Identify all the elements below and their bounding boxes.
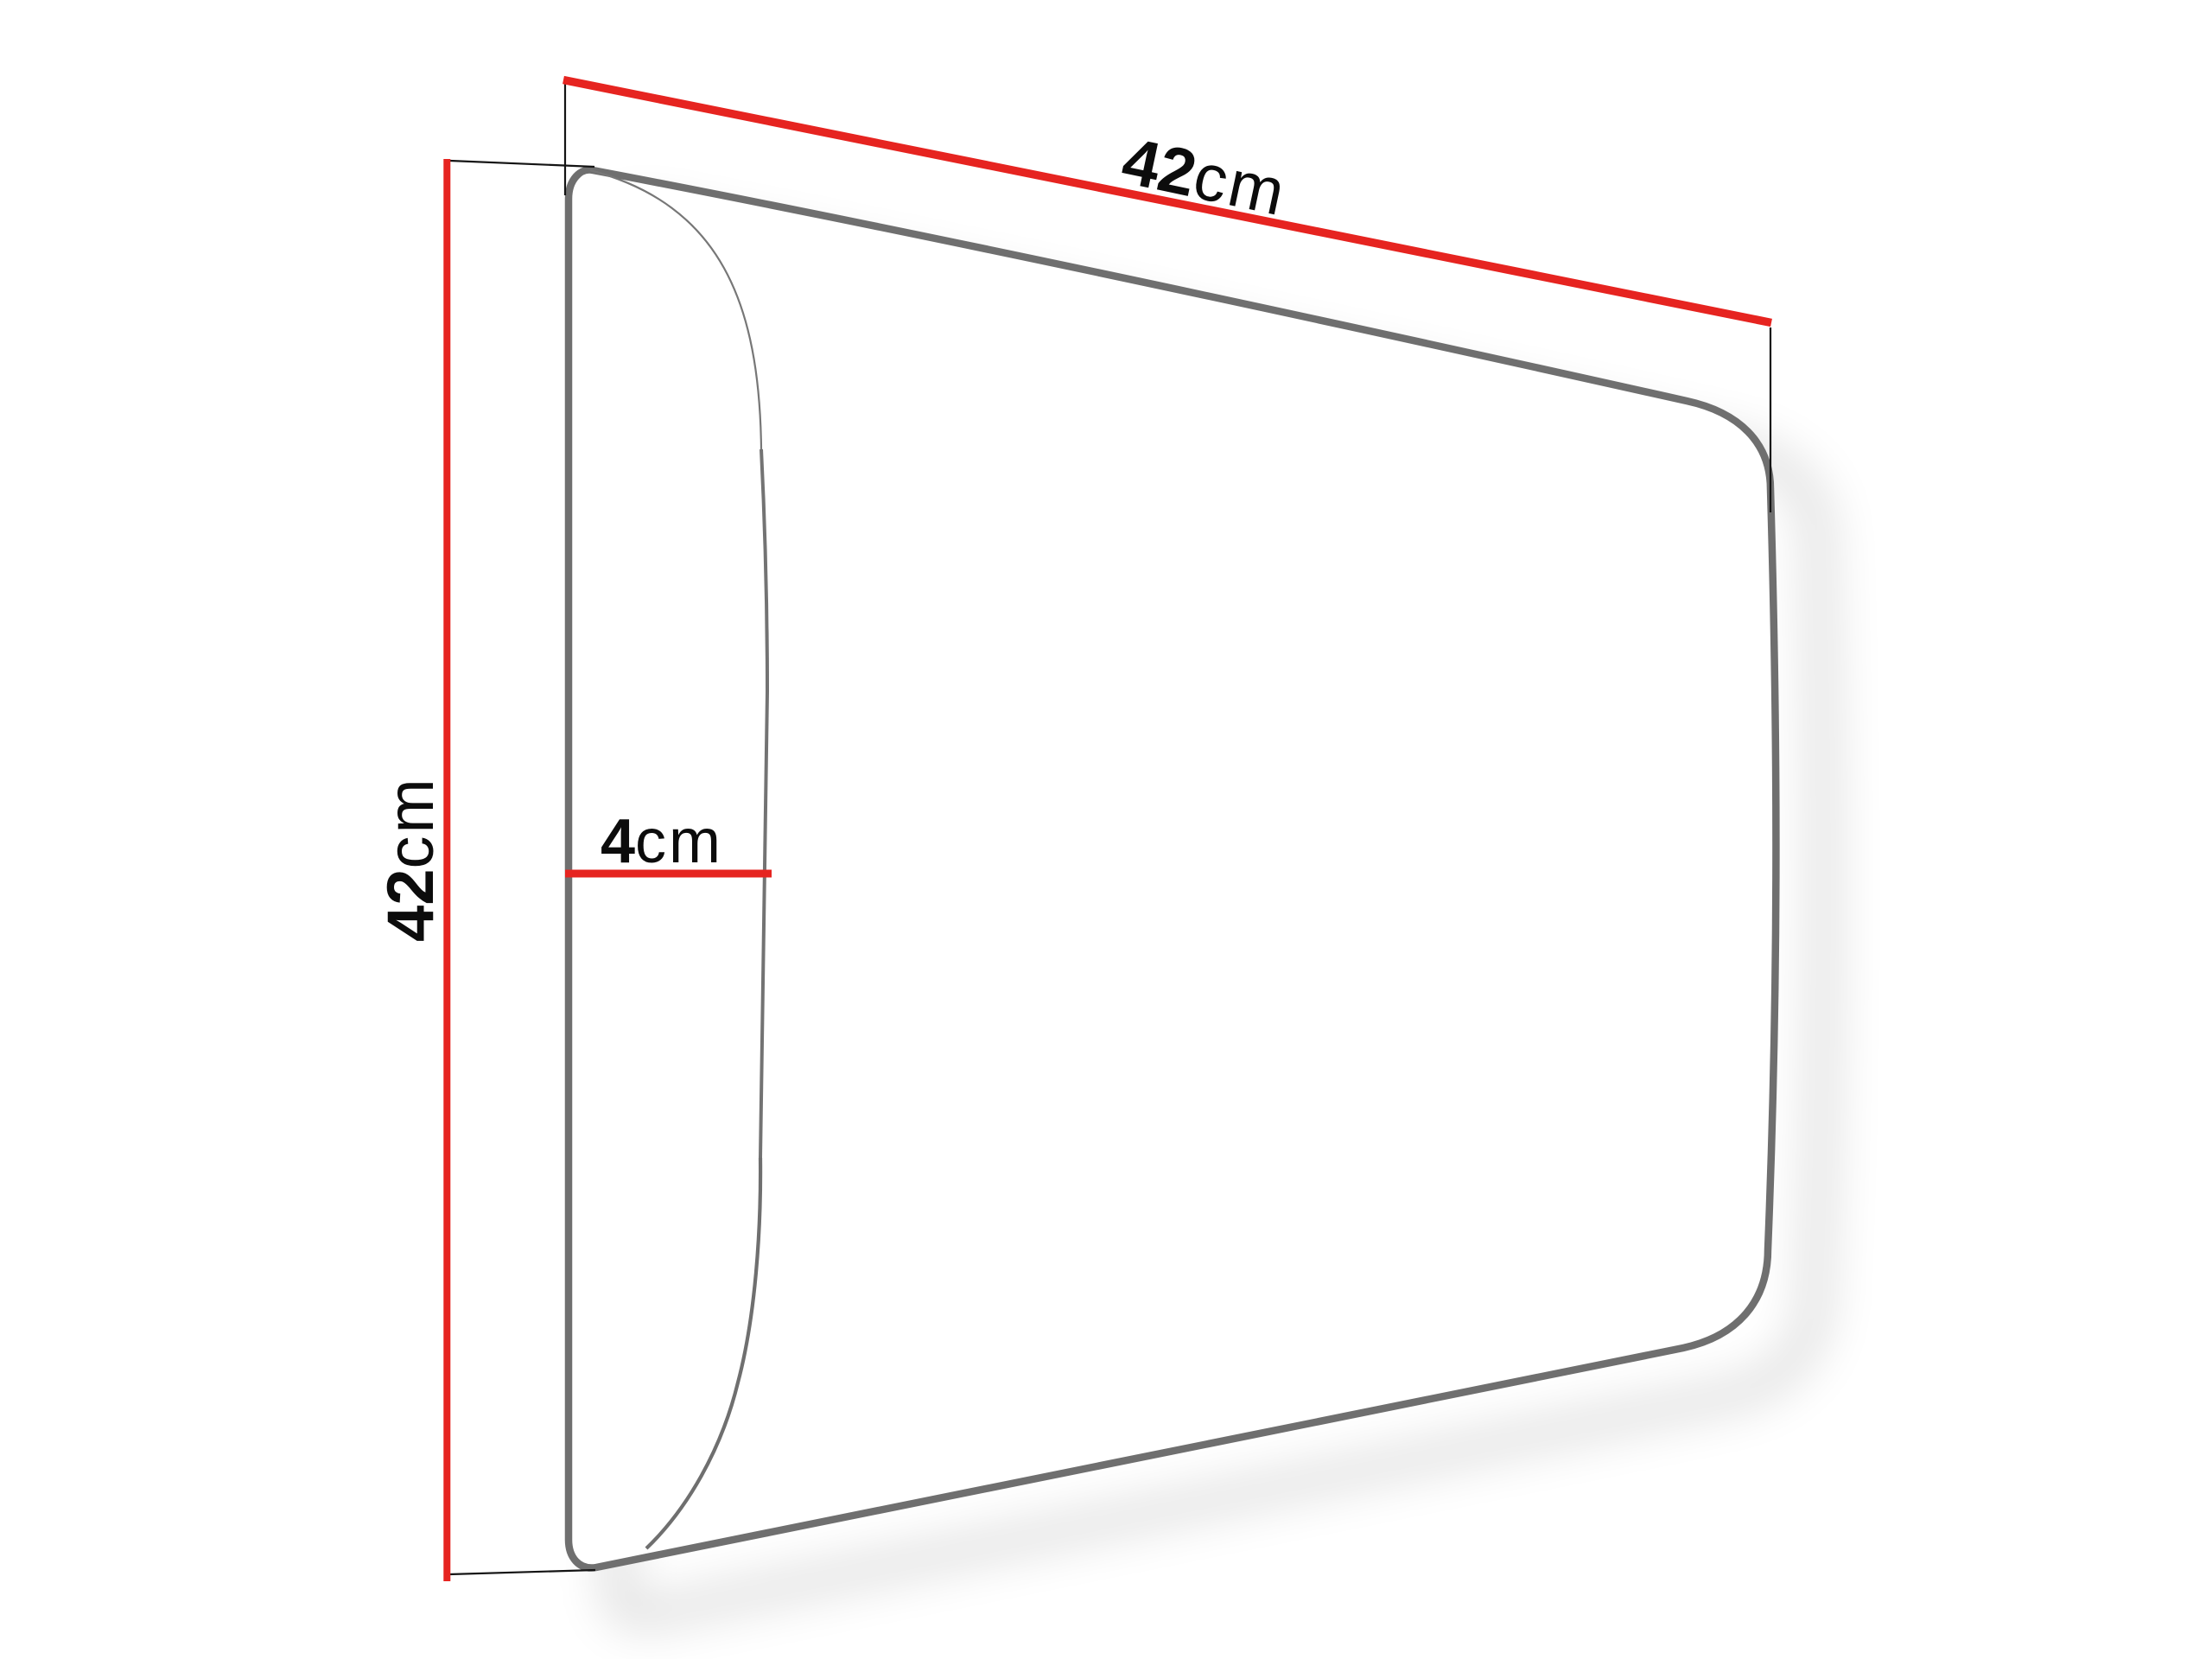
svg-text:4cm: 4cm	[601, 807, 723, 876]
svg-text:42cm: 42cm	[374, 776, 448, 942]
